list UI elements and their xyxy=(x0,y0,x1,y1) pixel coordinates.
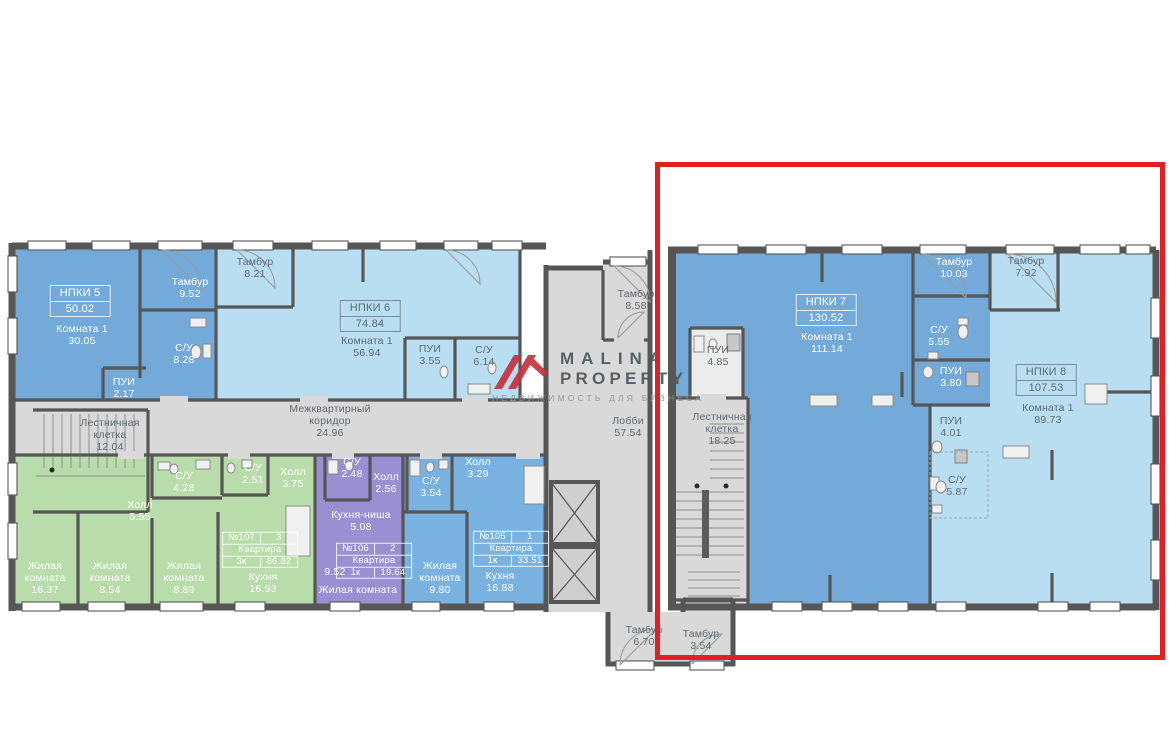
label-a105-hall: Холл3.29 xyxy=(465,457,491,481)
label-npki5-title: НПКИ 550.02 xyxy=(50,285,111,317)
label-a107-room2: Жилаякомната8.54 xyxy=(89,561,130,597)
label-a107-su2: С/У2.51 xyxy=(242,463,263,487)
label-a106-hall: Холл2.56 xyxy=(373,472,399,496)
label-a107-kitchen: Кухня16.93 xyxy=(248,572,277,596)
label-npki5-pui: ПУИ2.17 xyxy=(113,377,135,401)
label-a107-hall2: Холл3.75 xyxy=(280,467,306,491)
label-a106-niche: Кухня-ниша5.08 xyxy=(331,510,391,534)
label-a105-room: Жилаякомната9.80 xyxy=(419,561,460,597)
label-a106-su: С/У2.48 xyxy=(341,457,362,481)
label-a107-box: №1073Квартира3к66.82 xyxy=(222,532,298,568)
label-npki5-su: С/У8.28 xyxy=(173,343,194,367)
label-a105-kitchen: Кухня16.88 xyxy=(485,571,514,595)
label-npki6-pui: ПУИ3.55 xyxy=(419,344,441,368)
label-stairwell-12: Лестничнаяклетка12.04 xyxy=(80,418,139,454)
label-corridor: Межквартирныйкоридор24.96 xyxy=(289,404,370,440)
label-a106-box: №1062Квартира1к19.64 xyxy=(336,543,412,579)
label-npki5-room: Комната 130.05 xyxy=(56,324,108,348)
label-npki5-tambur: Тамбур9.52 xyxy=(172,277,209,301)
label-a105-su: С/У3.54 xyxy=(420,476,441,500)
label-a107-hall1: Холл5.55 xyxy=(127,500,153,524)
label-tambur-858: Тамбур8.58 xyxy=(618,289,655,313)
label-tambur-821: Тамбур8.21 xyxy=(237,257,274,281)
label-a107-su1: С/У4.28 xyxy=(173,471,194,495)
label-npki6-title: НПКИ 674.84 xyxy=(340,300,401,332)
floor-plan-page: НПКИ 550.02Комната 130.05Тамбур9.52С/У8.… xyxy=(0,0,1173,755)
label-a105-box: №1051Квартира1к33.51 xyxy=(473,531,549,567)
label-lobby: Лобби57.54 xyxy=(612,416,644,440)
watermark-logo-icon xyxy=(492,347,550,391)
label-a107-room1: Жилаякомната16.37 xyxy=(24,561,65,597)
label-a107-room3: Жилаякомната8.89 xyxy=(163,561,204,597)
label-a106-room: Жилая комната xyxy=(319,585,397,597)
highlight-rectangle xyxy=(655,162,1165,660)
label-a106-area: 9.52 xyxy=(324,567,345,579)
label-npki6-room: Комната 156.94 xyxy=(341,336,393,360)
